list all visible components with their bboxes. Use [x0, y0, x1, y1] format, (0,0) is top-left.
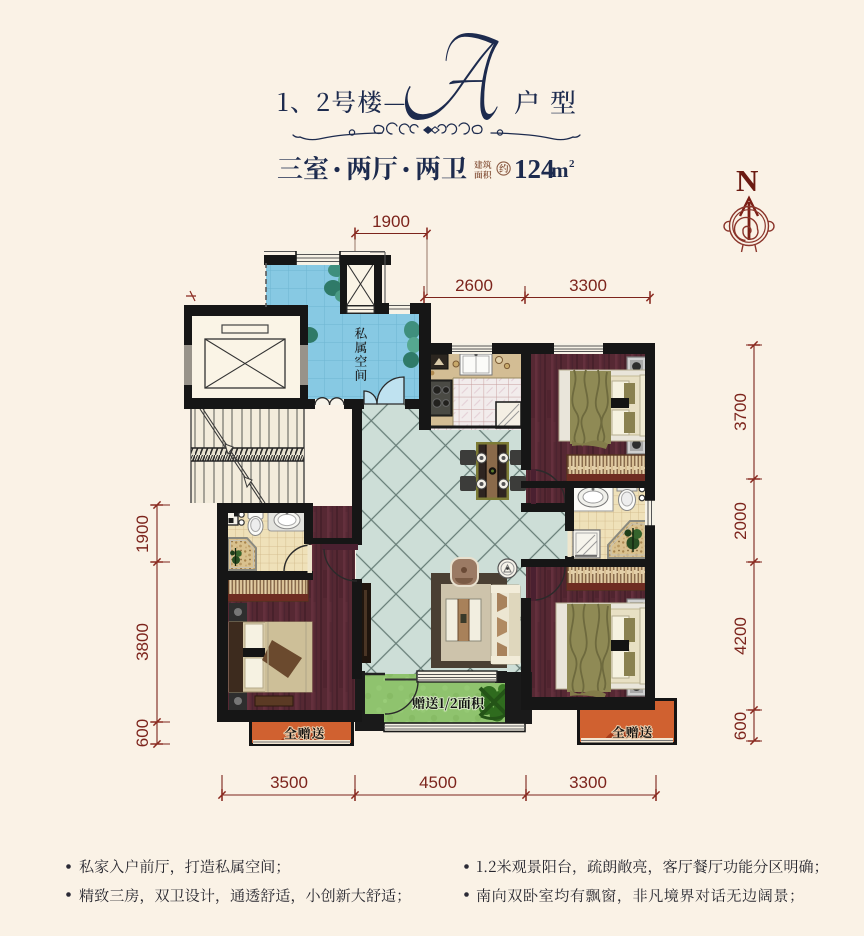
- svg-text:N: N: [736, 163, 758, 198]
- svg-text:4200: 4200: [731, 617, 750, 655]
- svg-text:2000: 2000: [731, 502, 750, 540]
- svg-text:1900: 1900: [372, 212, 410, 231]
- svg-text:2: 2: [569, 158, 575, 170]
- svg-text:3300: 3300: [569, 276, 607, 295]
- svg-text:3800: 3800: [133, 623, 152, 661]
- svg-text:4500: 4500: [419, 773, 457, 792]
- svg-text:1900: 1900: [133, 515, 152, 553]
- svg-text:3500: 3500: [270, 773, 308, 792]
- svg-text:m: m: [551, 158, 569, 182]
- svg-text:600: 600: [731, 712, 750, 740]
- svg-text:3300: 3300: [569, 773, 607, 792]
- svg-text:3700: 3700: [731, 393, 750, 431]
- svg-text:124: 124: [514, 154, 555, 184]
- svg-text:2600: 2600: [455, 276, 493, 295]
- svg-text:600: 600: [133, 719, 152, 747]
